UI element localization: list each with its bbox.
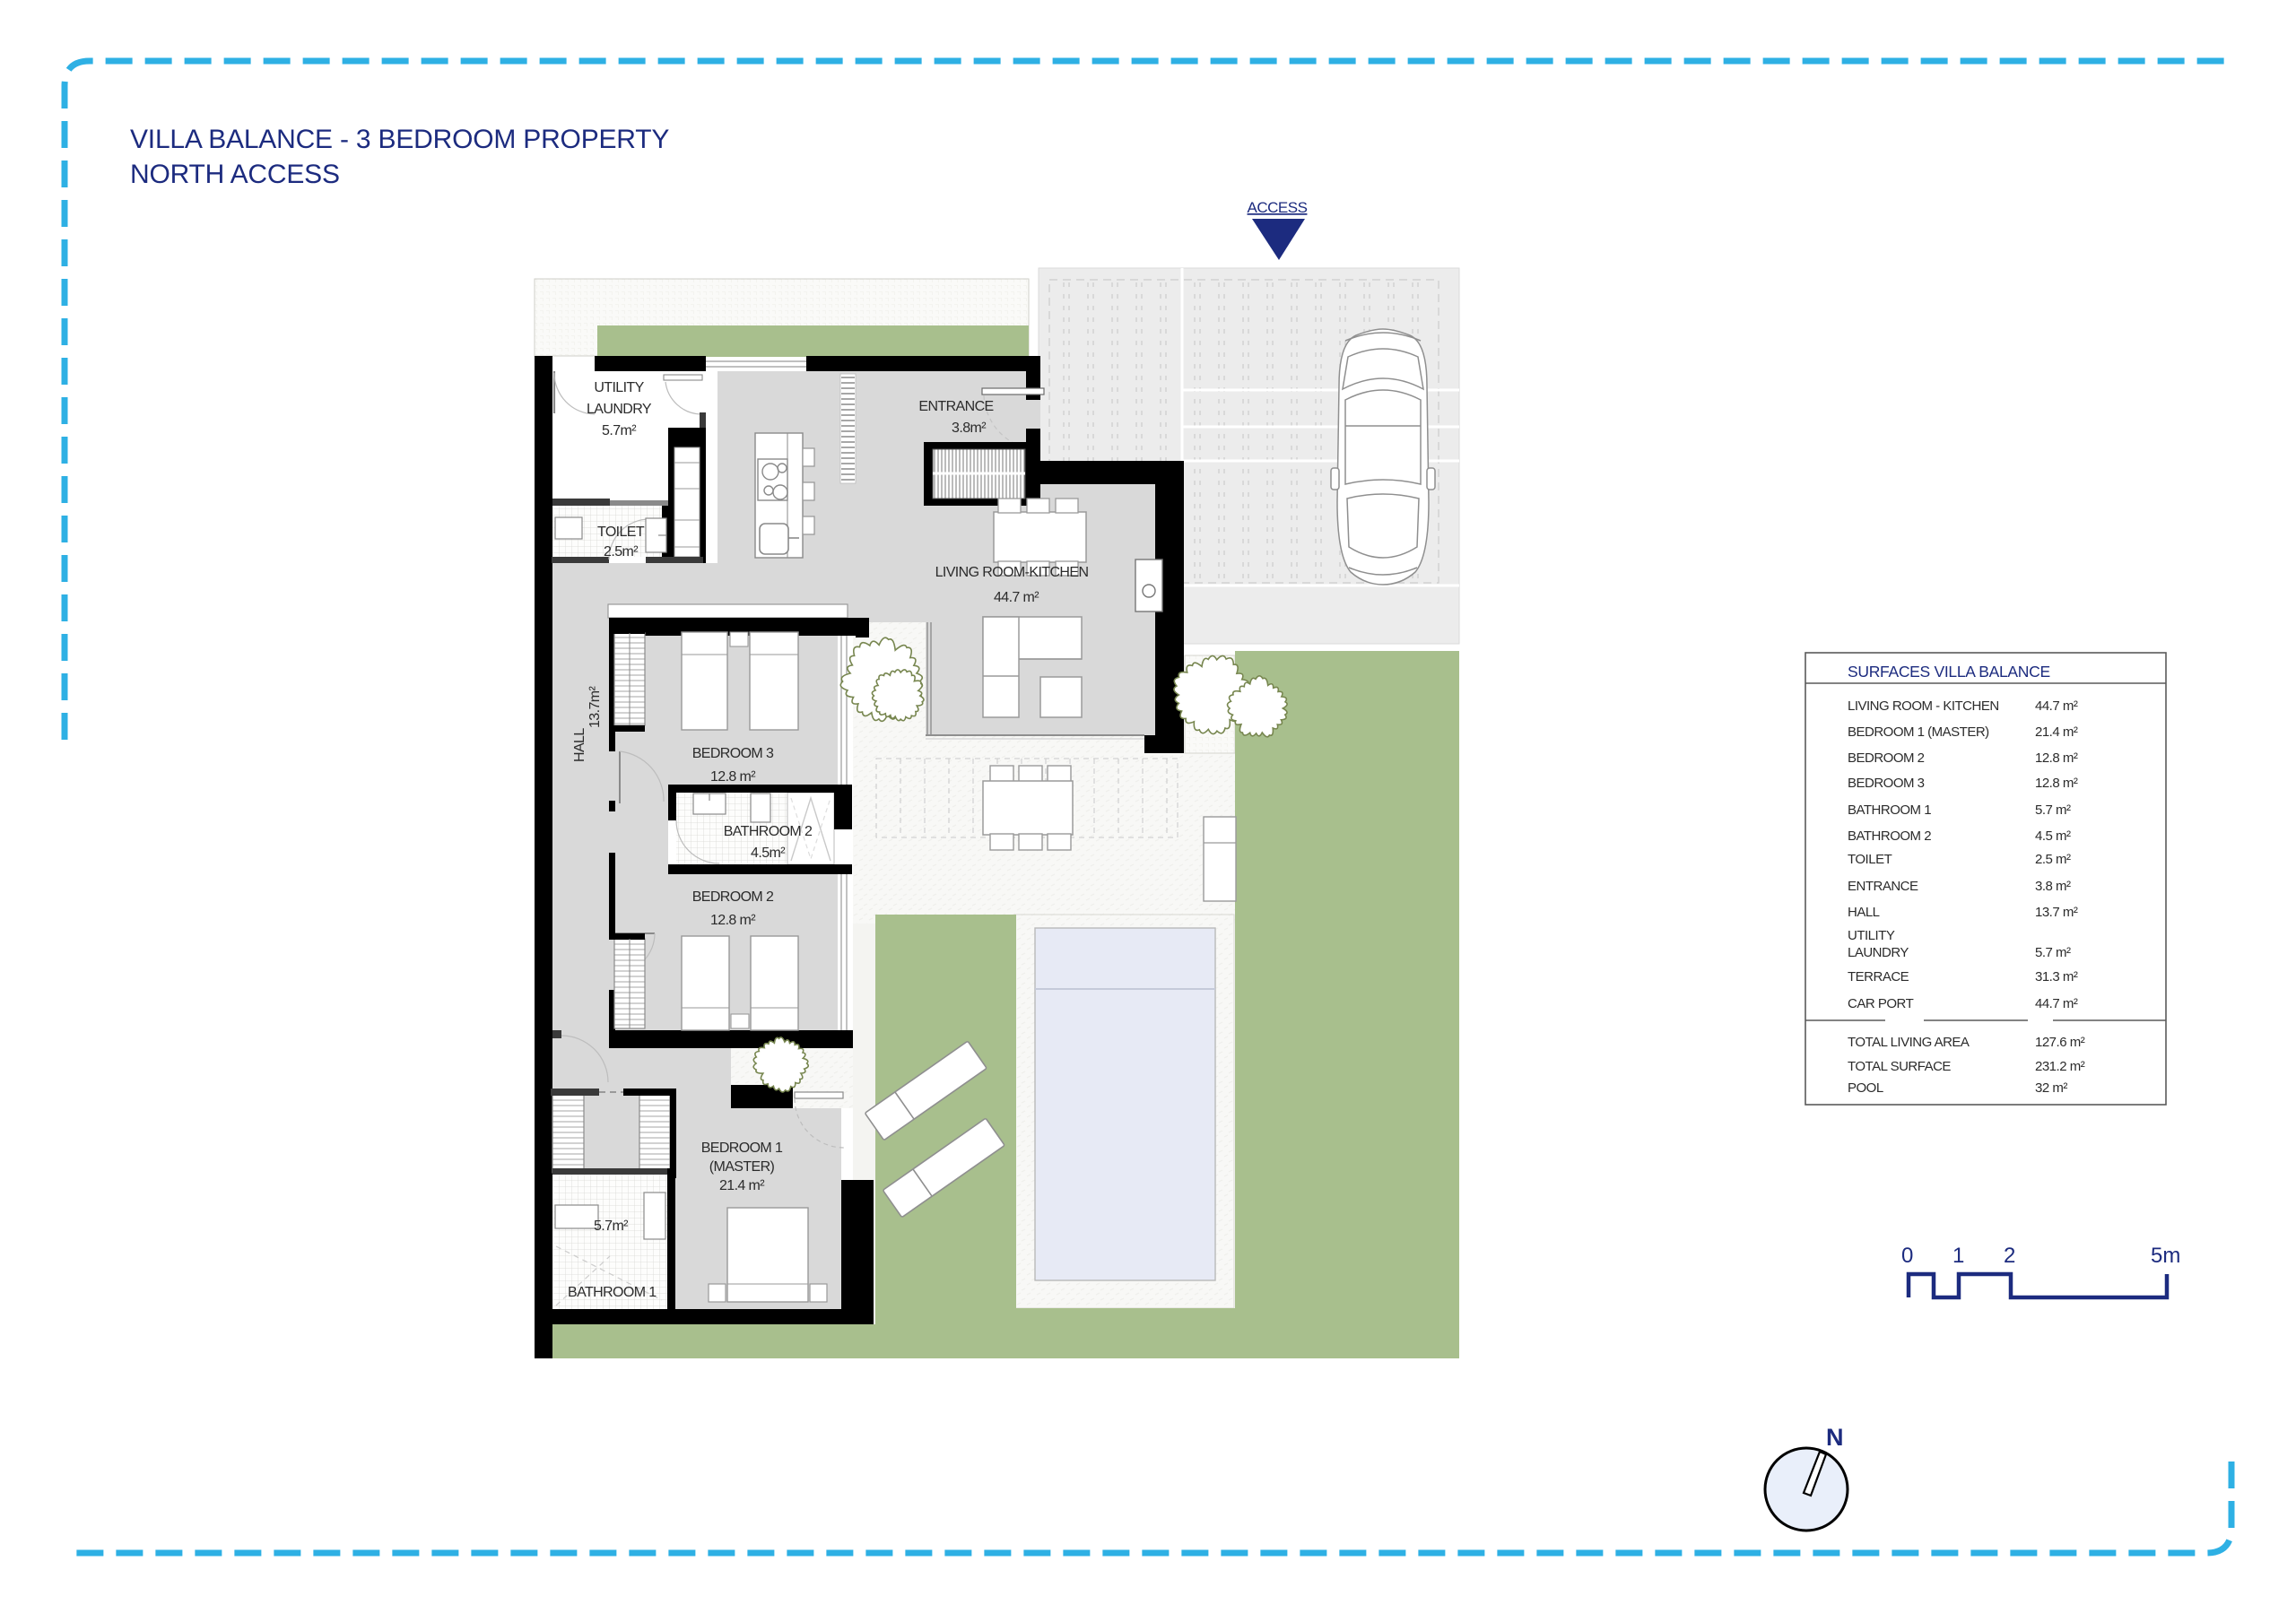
svg-text:ENTRANCE: ENTRANCE (1848, 879, 1918, 894)
svg-text:4.5 m²: 4.5 m² (2035, 828, 2071, 844)
svg-text:44.7 m²: 44.7 m² (2035, 698, 2078, 714)
svg-text:TOILET: TOILET (1848, 852, 1892, 867)
svg-text:5.7m²: 5.7m² (594, 1219, 629, 1234)
svg-text:POOL: POOL (1848, 1080, 1883, 1096)
svg-text:BEDROOM 2: BEDROOM 2 (1848, 750, 1925, 766)
svg-text:12.8 m²: 12.8 m² (2035, 776, 2078, 791)
svg-text:2.5 m²: 2.5 m² (2035, 852, 2071, 867)
svg-text:LIVING ROOM - KITCHEN: LIVING ROOM - KITCHEN (1848, 698, 1999, 714)
svg-text:5.7m²: 5.7m² (602, 423, 637, 438)
svg-text:1: 1 (1952, 1244, 1964, 1268)
svg-text:BEDROOM 3: BEDROOM 3 (692, 746, 774, 761)
svg-text:NORTH ACCESS: NORTH ACCESS (130, 160, 340, 189)
svg-text:BATHROOM 1: BATHROOM 1 (568, 1285, 657, 1300)
svg-text:ENTRANCE: ENTRANCE (918, 399, 993, 414)
svg-text:32 m²: 32 m² (2035, 1080, 2067, 1096)
svg-text:BATHROOM 1: BATHROOM 1 (1848, 802, 1931, 818)
svg-text:5.7 m²: 5.7 m² (2035, 802, 2071, 818)
svg-text:VILLA BALANCE - 3 BEDROOM PROP: VILLA BALANCE - 3 BEDROOM PROPERTY (130, 125, 669, 154)
svg-text:BEDROOM 1: BEDROOM 1 (701, 1141, 783, 1156)
svg-text:LAUNDRY: LAUNDRY (1848, 945, 1909, 960)
svg-text:UTILITY: UTILITY (594, 380, 644, 395)
svg-text:BATHROOM 2: BATHROOM 2 (724, 824, 813, 839)
svg-text:BEDROOM 2: BEDROOM 2 (692, 889, 774, 905)
svg-text:3.8m²: 3.8m² (952, 421, 987, 436)
svg-text:TOTAL SURFACE: TOTAL SURFACE (1848, 1059, 1951, 1074)
svg-text:12.8 m²: 12.8 m² (710, 769, 756, 785)
svg-text:12.8 m²: 12.8 m² (710, 913, 756, 928)
svg-text:127.6 m²: 127.6 m² (2035, 1035, 2085, 1050)
svg-text:31.3 m²: 31.3 m² (2035, 969, 2078, 984)
svg-text:13.7m²: 13.7m² (587, 686, 603, 728)
svg-text:4.5m²: 4.5m² (751, 846, 786, 861)
svg-text:3.8 m²: 3.8 m² (2035, 879, 2071, 894)
svg-text:21.4 m²: 21.4 m² (719, 1178, 765, 1193)
svg-text:BEDROOM 3: BEDROOM 3 (1848, 776, 1925, 791)
svg-text:HALL: HALL (572, 728, 587, 762)
svg-text:LAUNDRY: LAUNDRY (587, 402, 652, 417)
svg-text:UTILITY: UTILITY (1848, 928, 1895, 943)
svg-text:0: 0 (1901, 1244, 1913, 1268)
svg-text:13.7 m²: 13.7 m² (2035, 905, 2078, 920)
svg-text:TERRACE: TERRACE (1848, 969, 1909, 984)
svg-text:21.4 m²: 21.4 m² (2035, 724, 2078, 740)
svg-text:5.7 m²: 5.7 m² (2035, 945, 2071, 960)
svg-text:231.2 m²: 231.2 m² (2035, 1059, 2085, 1074)
svg-text:LIVING ROOM-KITCHEN: LIVING ROOM-KITCHEN (935, 565, 1089, 580)
svg-text:2.5m²: 2.5m² (604, 544, 639, 559)
svg-text:(MASTER): (MASTER) (709, 1159, 775, 1175)
svg-text:TOILET: TOILET (597, 525, 645, 540)
svg-text:12.8 m²: 12.8 m² (2035, 750, 2078, 766)
svg-text:ACCESS: ACCESS (1248, 199, 1308, 216)
svg-text:2: 2 (2004, 1244, 2015, 1268)
svg-text:N: N (1826, 1424, 1844, 1451)
svg-text:TOTAL LIVING AREA: TOTAL LIVING AREA (1848, 1035, 1970, 1050)
svg-text:HALL: HALL (1848, 905, 1880, 920)
svg-text:SURFACES VILLA BALANCE: SURFACES VILLA BALANCE (1848, 663, 2050, 681)
svg-text:5m: 5m (2151, 1244, 2180, 1268)
svg-text:BEDROOM 1 (MASTER): BEDROOM 1 (MASTER) (1848, 724, 1989, 740)
svg-text:CAR PORT: CAR PORT (1848, 996, 1914, 1011)
svg-text:44.7 m²: 44.7 m² (2035, 996, 2078, 1011)
svg-text:44.7 m²: 44.7 m² (994, 590, 1039, 605)
svg-text:BATHROOM 2: BATHROOM 2 (1848, 828, 1931, 844)
